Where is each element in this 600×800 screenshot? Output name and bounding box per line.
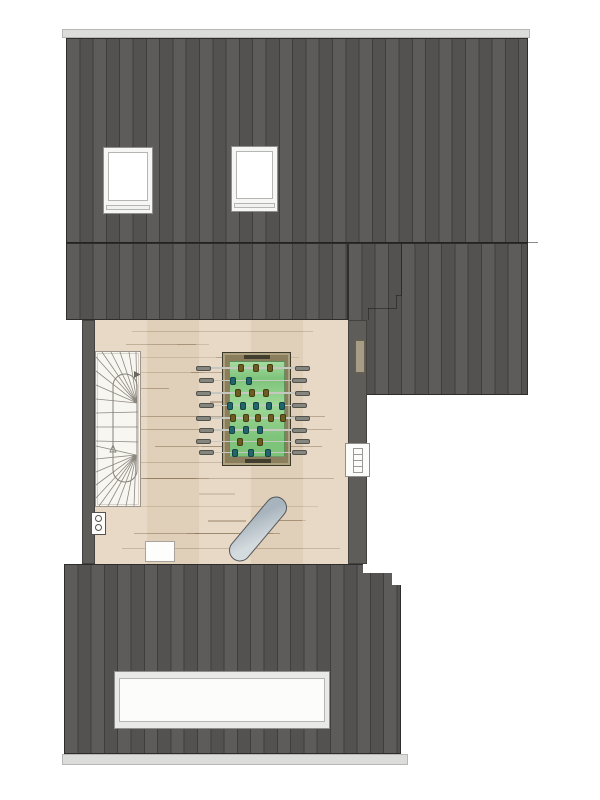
foosball-player	[253, 402, 259, 410]
foosball-player	[248, 449, 254, 457]
foosball-grip-right	[295, 391, 310, 396]
skylight-strip-pane	[119, 678, 325, 722]
foosball-player	[237, 438, 243, 446]
roof-step-line	[368, 308, 397, 309]
foosball-grip-right	[295, 416, 310, 421]
roof-skylight-left	[103, 147, 153, 214]
foosball-player	[246, 377, 252, 385]
foosball-grip-left	[196, 439, 211, 444]
foosball-player	[238, 364, 244, 372]
pipe-circle	[95, 515, 102, 522]
foosball-player	[232, 449, 238, 457]
foosball-grip-left	[196, 391, 211, 396]
foosball-player	[229, 426, 235, 434]
floor-hatch	[145, 541, 175, 562]
foosball-grip-right	[292, 378, 307, 383]
foosball-player	[267, 364, 273, 372]
foosball-player	[240, 402, 246, 410]
foosball-grip-right	[295, 366, 310, 371]
roof-skylight-right	[231, 146, 278, 212]
window-frame	[353, 448, 363, 473]
pipe-circle	[95, 524, 102, 531]
roof-band-left	[66, 243, 348, 320]
foosball-player	[255, 414, 261, 422]
foosball-player	[227, 402, 233, 410]
foosball-grip-right	[295, 439, 310, 444]
foosball-player	[230, 414, 236, 422]
pipe-fixture	[91, 512, 106, 535]
foosball-grip-left	[199, 378, 214, 383]
roof-step-line	[396, 295, 397, 308]
foosball-player	[280, 414, 286, 422]
skylight-sill	[234, 203, 275, 208]
foosball-player	[266, 402, 272, 410]
right-wall-window	[345, 443, 370, 477]
foosball-grip-right	[292, 428, 307, 433]
foosball-player	[235, 389, 241, 397]
foosball-player	[230, 377, 236, 385]
floor-plan-canvas	[0, 0, 600, 800]
foosball-goal-top	[244, 355, 270, 359]
roof-step-line	[401, 243, 402, 295]
skylight-sill	[106, 205, 150, 210]
foosball-grip-left	[199, 403, 214, 408]
roof-skylight-strip	[114, 671, 330, 729]
foosball-rod	[203, 441, 307, 443]
foosball-rod	[203, 392, 307, 394]
foosball-player	[263, 389, 269, 397]
foosball-goal-bottom	[245, 459, 271, 463]
foosball-grip-right	[292, 450, 307, 455]
foosball-player	[257, 438, 263, 446]
foosball-player	[279, 402, 285, 410]
foosball-player	[268, 414, 274, 422]
foosball-player	[265, 449, 271, 457]
chimney-vent	[355, 340, 365, 373]
foosball-grip-left	[199, 428, 214, 433]
roof-band-right	[348, 243, 528, 395]
foosball-player	[243, 426, 249, 434]
roof-step-line	[368, 308, 369, 320]
foosball-player	[257, 426, 263, 434]
foosball-player	[253, 364, 259, 372]
bottom-eave-strip	[62, 754, 408, 765]
foosball-grip-left	[199, 450, 214, 455]
foosball-grip-left	[196, 366, 211, 371]
foosball-grip-left	[196, 416, 211, 421]
ridge-cap	[62, 29, 530, 38]
skylight-pane	[108, 152, 148, 201]
foosball-grip-right	[292, 403, 307, 408]
spiral-staircase	[95, 351, 141, 507]
foosball-player	[249, 389, 255, 397]
skylight-pane	[236, 151, 273, 199]
foosball-player	[243, 414, 249, 422]
